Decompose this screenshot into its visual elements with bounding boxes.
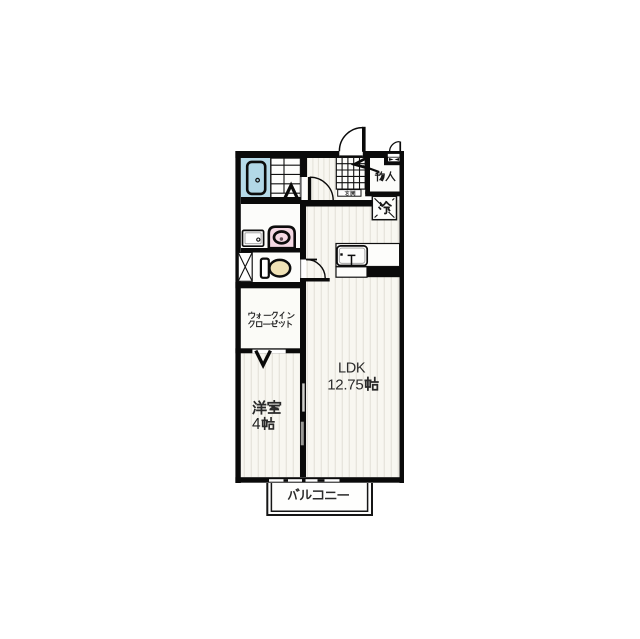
svg-text:LDK: LDK	[338, 360, 366, 376]
svg-text:12.75: 12.75	[327, 377, 364, 394]
svg-text:4: 4	[252, 416, 261, 433]
